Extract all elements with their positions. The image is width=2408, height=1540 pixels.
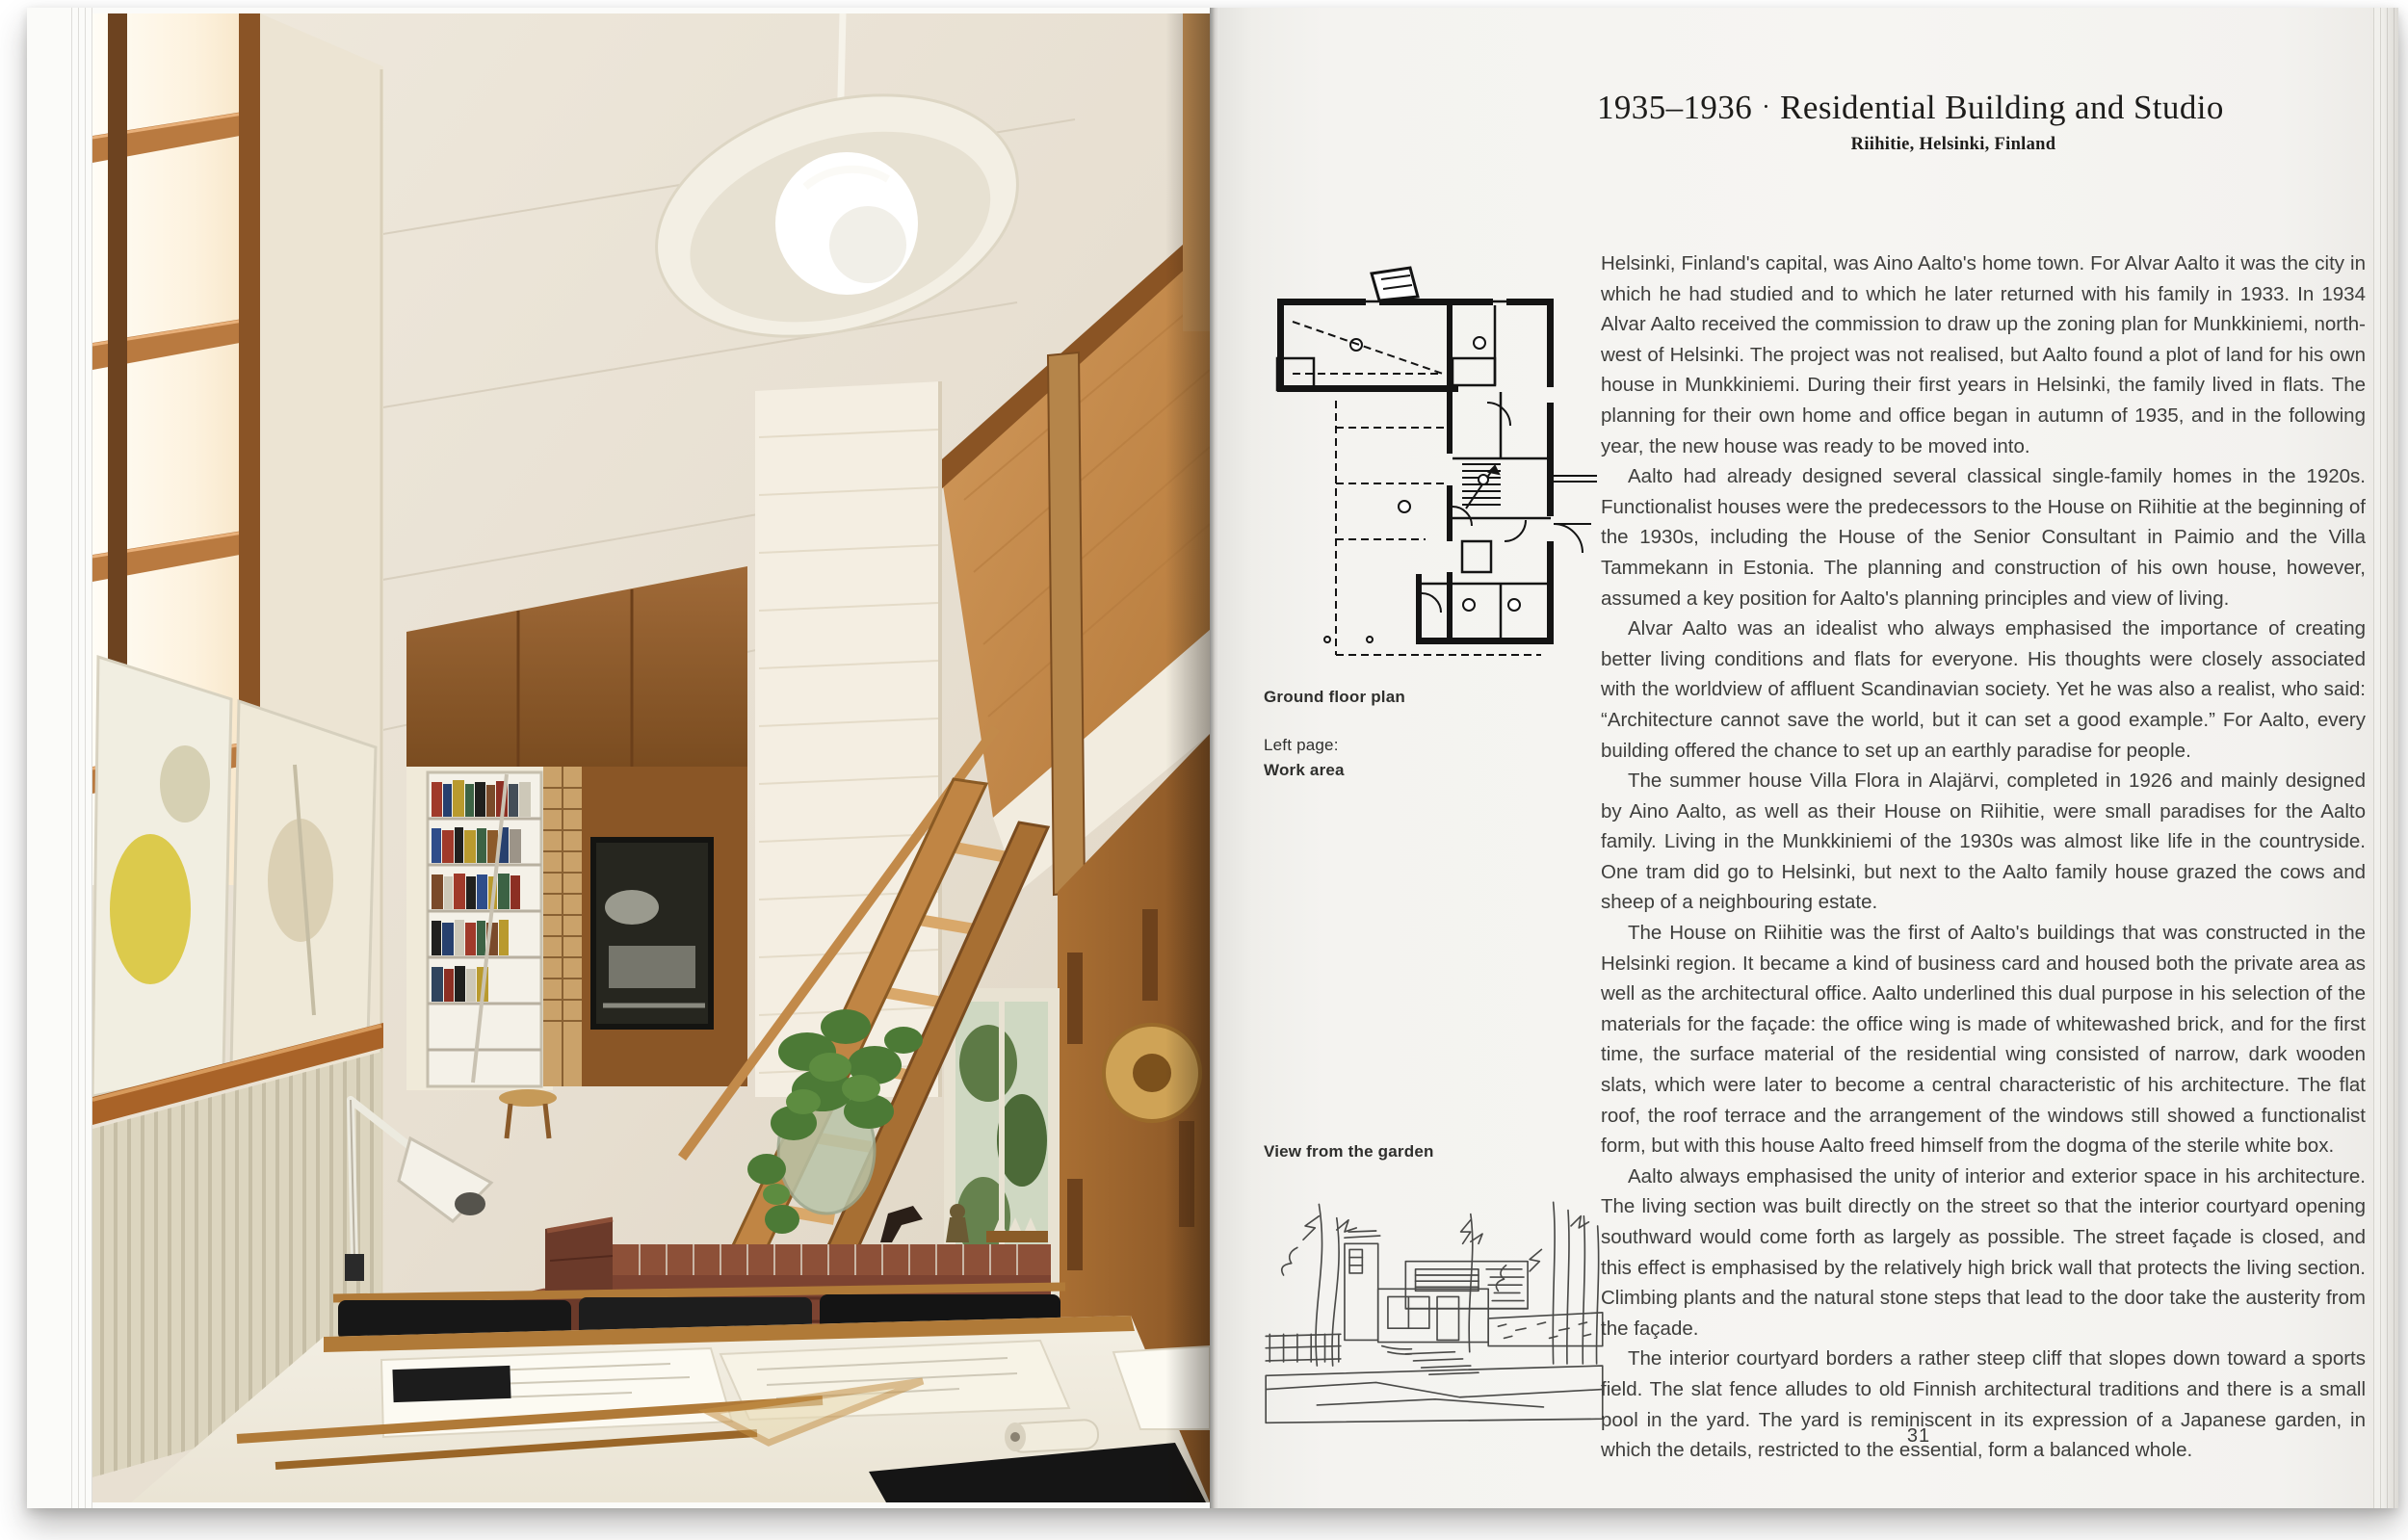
caption-ground-floor-plan: Ground floor plan: [1264, 688, 1405, 707]
bookshelf: [428, 772, 541, 1086]
book-spread-photo: 1935–1936·Residential Building and Studi…: [0, 0, 2408, 1540]
caption-garden-view: View from the garden: [1264, 1142, 1434, 1162]
studio-interior-illustration: [92, 13, 1210, 1502]
sketch-garden-wall: [1488, 1313, 1603, 1346]
gutter-shadow-on-photo: [1165, 13, 1210, 1502]
sketch-trees: [1282, 1202, 1599, 1366]
plan-walls: [1277, 299, 1554, 644]
garden-sketch-svg: [1258, 1187, 1612, 1427]
wood-post: [1048, 352, 1085, 895]
plan-chimney: [1372, 268, 1418, 300]
caption-left-page-label: Left page:: [1264, 736, 1339, 755]
sketch-fence: [1266, 1334, 1341, 1362]
body-paragraph: Aalto always emphasised the unity of int…: [1601, 1162, 2366, 1344]
body-paragraph: Aalto had already designed several class…: [1601, 461, 2366, 613]
right-page: 1935–1936·Residential Building and Studi…: [1219, 8, 2398, 1508]
title-name: Residential Building and Studio: [1780, 89, 2224, 126]
body-paragraph: Alvar Aalto was an idealist who always e…: [1601, 613, 2366, 766]
left-page: [27, 8, 1212, 1508]
title-years: 1935–1936: [1597, 89, 1752, 126]
caption-work-area: Work area: [1264, 761, 1345, 780]
page-stack-lines-left: [65, 8, 94, 1508]
back-room: [406, 763, 557, 1138]
black-notebook: [392, 1366, 510, 1402]
plan-partitions: [1277, 301, 1554, 641]
title-location: Riihitie, Helsinki, Finland: [1597, 135, 2310, 155]
chapter-title-block: 1935–1936·Residential Building and Studi…: [1597, 89, 2368, 155]
article-body: Helsinki, Finland's capital, was Aino Aa…: [1601, 248, 2366, 1466]
book-gutter: [1210, 8, 1219, 1508]
paper-roll: [1005, 1420, 1099, 1453]
chimney-column: [755, 381, 942, 1097]
floor-plan-svg: [1264, 266, 1597, 668]
page-title: 1935–1936·Residential Building and Studi…: [1597, 89, 2368, 127]
open-book: 1935–1936·Residential Building and Studi…: [27, 8, 2398, 1508]
framed-photo: [593, 840, 711, 1027]
wood-tray: [986, 1231, 1048, 1242]
plan-stairs: [1462, 464, 1501, 509]
lamp-clamp: [345, 1254, 364, 1281]
page-stack-edge-right: [2373, 8, 2398, 1508]
work-area-photo: [92, 13, 1210, 1502]
ground-floor-plan-drawing: [1264, 266, 1597, 668]
garden-view-drawing: [1258, 1187, 1612, 1429]
body-paragraph: The House on Riihitie was the first of A…: [1601, 918, 2366, 1162]
body-paragraph: The interior courtyard borders a rather …: [1601, 1344, 2366, 1465]
body-paragraph: The summer house Villa Flora in Alajärvi…: [1601, 766, 2366, 918]
page-number: 31: [1861, 1425, 1976, 1448]
body-paragraph: Helsinki, Finland's capital, was Aino Aa…: [1601, 248, 2366, 461]
title-separator: ·: [1762, 92, 1770, 121]
